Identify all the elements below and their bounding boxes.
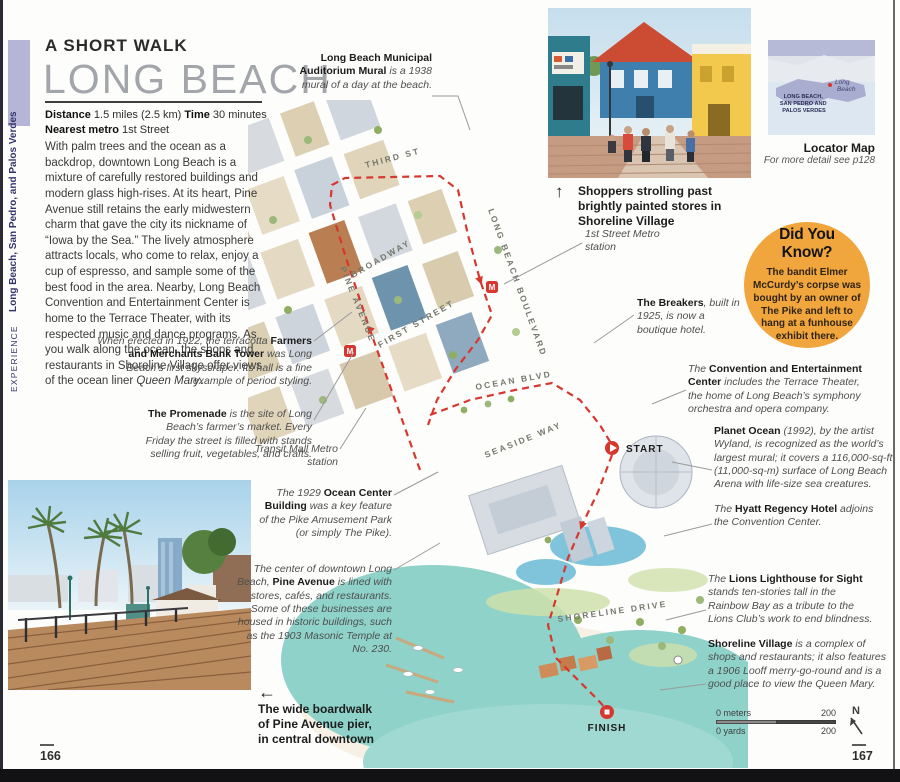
svg-text:N: N [852,705,860,717]
map-annotation-transit-mall: Transit Mall Metro station [243,443,338,470]
up-arrow-icon: ↑ [555,182,564,202]
metro-icon-transit-mall: M [344,345,356,357]
metro-icon-first-street: M [486,281,498,293]
svg-text:START: START [626,444,664,455]
sidebar-vertical-text: EXPERIENCE Long Beach, San Pedro, and Pa… [8,136,30,392]
map-annotation-convention-center: The Convention and Entertainment Center … [688,363,873,416]
page-number-right: 167 [852,744,873,763]
metro-label: Nearest metro [45,124,119,136]
scale-yards-value: 200 [821,726,836,736]
top-photo-caption: Shoppers strolling past brightly painted… [578,184,746,229]
page-left-edge [0,0,3,782]
title-rule [45,101,262,103]
city-blocks [248,100,502,445]
metro-value: 1st Street [119,124,169,136]
walk-facts: Distance 1.5 miles (2.5 km) Time 30 minu… [45,108,275,138]
street-seaside: SEASIDE WAY [483,420,563,460]
boardwalk-photo [8,480,251,690]
map-scale-bar: 0 meters 200 0 yards 200 [716,708,836,736]
scale-yards-label: 0 yards [716,726,746,736]
walk-kicker: A SHORT WALK [45,36,188,56]
lighthouse [674,656,682,664]
locator-subtitle: For more detail see p128 [735,155,875,166]
locator-city-dot [828,83,832,87]
map-annotation-first-street-metro: 1st Street Metro station [585,228,660,255]
map-annotation-pine-avenue: The center of downtown Long Beach, Pine … [232,563,392,656]
time-value: 30 minutes [210,109,267,121]
locator-map: Long Beach LONG BEACH, SAN PEDRO AND PAL… [768,40,875,135]
distance-label: Distance [45,109,91,121]
map-annotation-mural: Long Beach Municipal Auditorium Mural is… [287,52,432,92]
scale-meters-value: 200 [821,708,836,718]
map-annotation-lions-lighthouse: The Lions Lighthouse for Sight stands te… [708,573,876,626]
sidebar-chapter-label: Long Beach, San Pedro, and Palos Verdes [8,112,19,313]
map-annotation-ocean-center: The 1929 Ocean Center Building was a key… [257,487,392,540]
svg-text:M: M [347,347,354,356]
locator-caption: Locator Map For more detail see p128 [735,141,875,166]
north-arrow: N [842,702,868,738]
sidebar-section-label: EXPERIENCE [9,325,19,392]
map-annotation-planet-ocean: Planet Ocean (1992), by the artist Wylan… [714,425,894,492]
bottom-photo-caption: The wide boardwalk of Pine Avenue pier, … [258,702,378,747]
map-annotation-shoreline-village: Shoreline Village is a complex of shops … [708,638,888,691]
did-you-know-title: Did You Know? [753,226,861,262]
svg-text:LONG BEACH, SAN PEDRO AND: LONG BEACH, SAN PEDRO AND PALOS VERDES [780,94,828,114]
svg-text:M: M [489,283,496,292]
page-number-left: 166 [40,744,61,763]
experience-sidebar-tab: EXPERIENCE Long Beach, San Pedro, and Pa… [8,40,30,392]
did-you-know-body: The bandit Elmer McCurdy’s corpse was bo… [753,267,861,344]
street-ocean: OCEAN BLVD [475,369,553,392]
map-annotation-farmers-merchants: When erected in 1922, the terracotta Far… [97,335,312,388]
left-arrow-icon: ← [258,682,276,703]
locator-title: Locator Map [735,141,875,155]
scale-meters-label: 0 meters [716,708,751,718]
svg-text:FINISH: FINISH [588,723,627,734]
map-annotation-breakers: The Breakers, built in 1925, is now a bo… [637,297,747,337]
page-edge-line [893,0,895,770]
bottom-bar [0,769,900,782]
distance-value: 1.5 miles (2.5 km) [91,109,185,121]
time-label: Time [184,109,209,121]
map-annotation-hyatt: The Hyatt Regency Hotel adjoins the Conv… [714,503,889,530]
did-you-know-badge: Did You Know? The bandit Elmer McCurdy’s… [744,222,870,348]
start-marker: START [605,441,664,455]
